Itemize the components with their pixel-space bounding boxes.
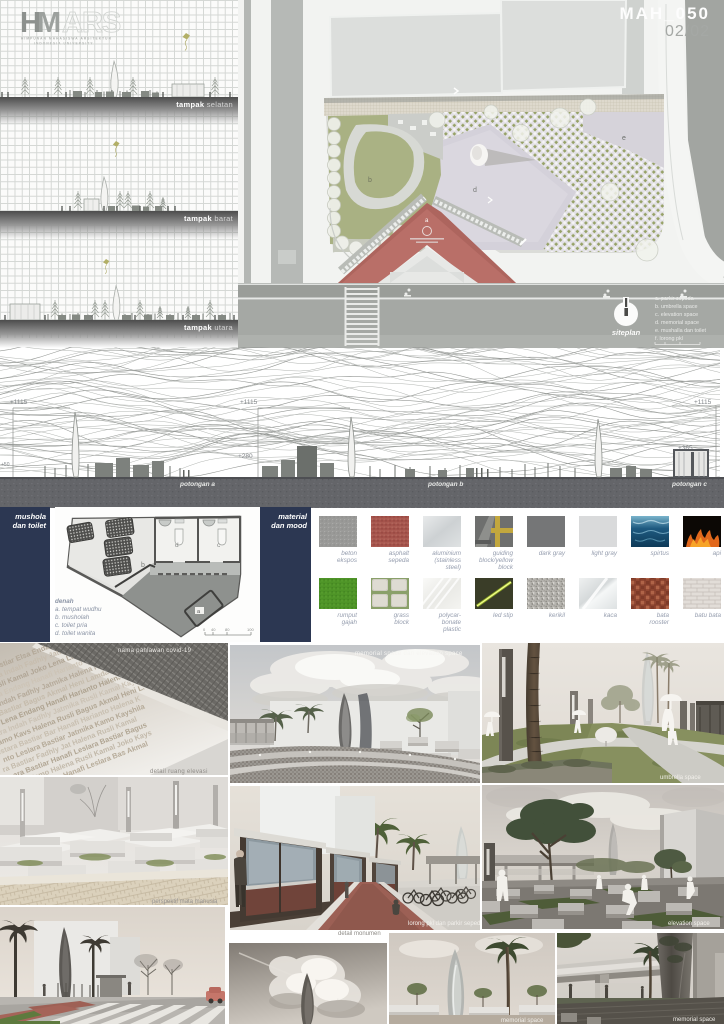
svg-text:light gray: light gray bbox=[591, 550, 617, 557]
svg-text:sepeda: sepeda bbox=[388, 557, 409, 564]
svg-text:rooster: rooster bbox=[649, 619, 670, 626]
svg-text:a. parkir sepeda: a. parkir sepeda bbox=[655, 296, 694, 302]
svg-text:denah: denah bbox=[55, 598, 74, 605]
svg-text:+1115: +1115 bbox=[10, 399, 28, 406]
svg-text:detail ruang elevasi: detail ruang elevasi bbox=[150, 769, 208, 775]
svg-text:potongan a: potongan a bbox=[179, 481, 215, 488]
svg-text:d. memorial space: d. memorial space bbox=[655, 320, 699, 326]
svg-text:c. toilet pria: c. toilet pria bbox=[55, 622, 88, 629]
svg-text:40: 40 bbox=[211, 627, 216, 632]
svg-text:perspektif mata manusia: perspektif mata manusia bbox=[152, 899, 218, 905]
svg-text:nama pahlawan covid-19: nama pahlawan covid-19 bbox=[118, 648, 192, 654]
svg-text:+1115: +1115 bbox=[694, 399, 712, 406]
svg-text:+50: +50 bbox=[1, 462, 10, 468]
svg-text:c. elevation space: c. elevation space bbox=[655, 312, 698, 318]
svg-text:block: block bbox=[394, 619, 410, 626]
svg-text:80: 80 bbox=[225, 627, 230, 632]
svg-text:memorial space dan elevation s: memorial space dan elevation space bbox=[355, 651, 463, 657]
svg-text:kaca: kaca bbox=[604, 612, 618, 619]
svg-text:e: e bbox=[622, 135, 626, 142]
svg-text:100: 100 bbox=[247, 627, 254, 632]
svg-text:+280: +280 bbox=[238, 453, 253, 460]
svg-text:guiding: guiding bbox=[493, 550, 514, 557]
svg-text:potongan c: potongan c bbox=[671, 481, 707, 488]
svg-text:gajah: gajah bbox=[342, 619, 358, 626]
svg-text:(stainless: (stainless bbox=[434, 557, 461, 564]
svg-text:lorong pkl dan parkir sepeda: lorong pkl dan parkir sepeda bbox=[408, 921, 480, 927]
svg-text:umbrella space: umbrella space bbox=[660, 775, 701, 781]
svg-text:ARS: ARS bbox=[62, 7, 121, 39]
svg-text:grass: grass bbox=[394, 612, 410, 619]
svg-text:+1115: +1115 bbox=[240, 399, 258, 406]
svg-text:beton: beton bbox=[341, 550, 357, 557]
svg-text:spirtus: spirtus bbox=[650, 550, 669, 557]
svg-text:d: d bbox=[473, 187, 477, 194]
svg-text:bata: bata bbox=[657, 612, 670, 619]
svg-text:dark gray: dark gray bbox=[539, 550, 566, 557]
svg-text:INDONESIA UNIVERSITY: INDONESIA UNIVERSITY bbox=[34, 42, 94, 46]
svg-text:c: c bbox=[578, 177, 582, 184]
svg-text:•: • bbox=[337, 997, 339, 1003]
svg-text:memorial space: memorial space bbox=[501, 1018, 544, 1024]
svg-text:batu bata: batu bata bbox=[695, 612, 722, 619]
svg-text:rumput: rumput bbox=[337, 612, 357, 619]
svg-text:api: api bbox=[713, 550, 722, 557]
svg-text:d: d bbox=[175, 542, 179, 549]
svg-text:siteplan: siteplan bbox=[612, 328, 641, 337]
svg-text:block: block bbox=[498, 564, 514, 571]
svg-text:plastic: plastic bbox=[442, 626, 462, 633]
svg-text:d. toilet wanita: d. toilet wanita bbox=[55, 630, 96, 637]
svg-text:block/yellow: block/yellow bbox=[479, 557, 513, 564]
svg-text:steel): steel) bbox=[446, 564, 461, 571]
svg-text:kerikil: kerikil bbox=[549, 612, 566, 619]
svg-text:aluminium: aluminium bbox=[432, 550, 461, 557]
svg-text:memorial space: memorial space bbox=[673, 1017, 716, 1023]
svg-text:b. musholah: b. musholah bbox=[55, 614, 90, 621]
svg-text:ekspos: ekspos bbox=[337, 557, 358, 564]
svg-text:b: b bbox=[368, 177, 372, 184]
svg-text:bonate: bonate bbox=[442, 619, 462, 626]
svg-text:asphalt: asphalt bbox=[389, 550, 410, 557]
svg-text:e. mushalla dan toilet: e. mushalla dan toilet bbox=[655, 328, 706, 334]
svg-text:M: M bbox=[37, 7, 61, 39]
svg-text:elevation space: elevation space bbox=[668, 921, 710, 927]
svg-text:polycar-: polycar- bbox=[438, 612, 461, 619]
svg-text:b. umbrella space: b. umbrella space bbox=[655, 304, 698, 310]
svg-text:a. tempat wudhu: a. tempat wudhu bbox=[55, 606, 102, 613]
svg-text:HIMPUNAN MAHASISWA ARSITEKTUR: HIMPUNAN MAHASISWA ARSITEKTUR bbox=[21, 37, 112, 41]
svg-text:potongan b: potongan b bbox=[427, 481, 463, 488]
svg-text:0: 0 bbox=[203, 627, 206, 632]
svg-text:led stip: led stip bbox=[493, 612, 513, 619]
